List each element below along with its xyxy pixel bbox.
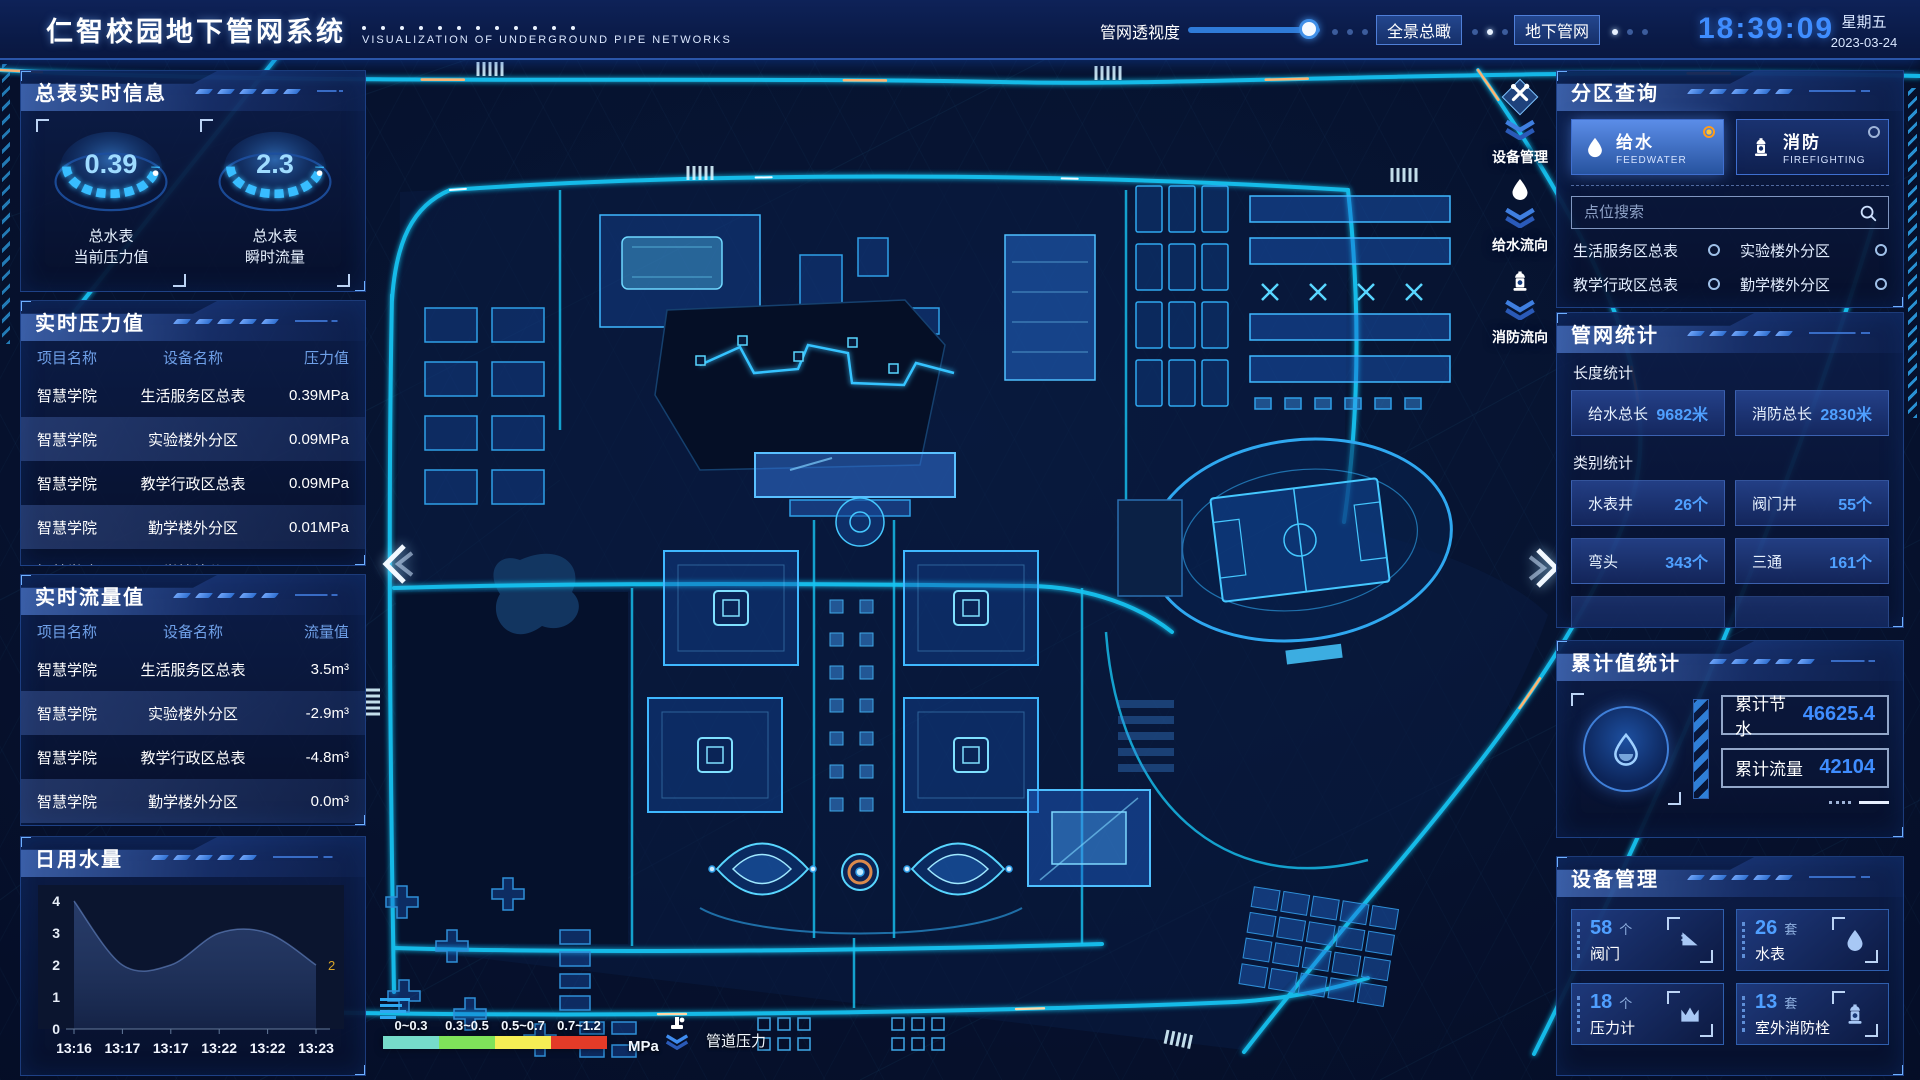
search-icon (1858, 203, 1878, 223)
panel-cumulative-stats: 累计值统计 累计节水46625.4 累计流量42104 (1556, 640, 1904, 838)
gauge-label: 总水表 瞬时流量 (200, 226, 350, 268)
cell-value: 0.01MPa (260, 519, 349, 536)
stat-box-partial (1735, 596, 1889, 628)
cumulative-saved-box: 累计节水46625.4 (1721, 695, 1889, 735)
stat-box-tees: 三通161个 (1735, 538, 1889, 584)
zone-point-label: 勤学楼外分区 (1740, 274, 1830, 295)
table-row: 智慧学院生活服务区总表3.5m³ (21, 647, 365, 691)
header-dots-decor (1332, 29, 1368, 35)
cumulative-flow-box: 累计流量42104 (1721, 748, 1889, 788)
gauge-main-flow: 2.3 总水表 瞬时流量 (200, 119, 350, 287)
clock-date: 星期五 2023-03-24 (1822, 11, 1906, 50)
gymnasium (1028, 790, 1150, 886)
equipment-card-pressure-gauges[interactable]: 18个压力计 (1571, 983, 1724, 1045)
slashes-decor (1689, 875, 1791, 880)
panel-daily-usage: 日用水量 0123413:1613:1713:1713:2213:2213:23… (20, 836, 366, 1076)
legend-color-bar (383, 1036, 607, 1049)
cell-project: 智慧学院 (37, 747, 126, 768)
point-search-box[interactable] (1571, 196, 1889, 229)
left-edge-decor (2, 64, 10, 344)
slashes-decor (175, 593, 277, 598)
zone-point-label: 生活服务区总表 (1573, 240, 1678, 261)
pressure-legend: 0~0.30.3~0.50.5~0.70.7~1.2 (383, 1018, 607, 1049)
hydrant-icon (1749, 135, 1773, 159)
slashes-decor (1689, 89, 1791, 94)
stat-box-fire-length: 消防总长2830米 (1735, 390, 1889, 436)
panel-title: 实时压力值 (35, 307, 145, 336)
panel-realtime-pressure: 实时压力值 项目名称 设备名称 压力值 智慧学院生活服务区总表0.39MPa智慧… (20, 300, 366, 566)
clock-weekday: 星期五 (1822, 11, 1906, 32)
table-row: 智慧学院教学行政区总表0.09MPa (21, 461, 365, 505)
pipe-pressure-icon (664, 1016, 690, 1050)
app-title: 仁智校园地下管网系统 (46, 10, 346, 49)
legend-unit: MPa (628, 1038, 659, 1055)
panel-header: 累计值统计 (1557, 641, 1903, 681)
zone-point-item[interactable]: 实验楼外分区 (1730, 233, 1897, 267)
x-tick-label: 13:17 (153, 1040, 189, 1056)
cell-project: 智慧学院 (37, 385, 126, 406)
title-dots-decor (362, 26, 732, 30)
underground-network-button[interactable]: 地下管网 (1514, 15, 1600, 45)
pressure-table-body: 智慧学院生活服务区总表0.39MPa智慧学院实验楼外分区0.09MPa智慧学院教… (21, 373, 365, 566)
cumulative-water-icon (1571, 693, 1681, 805)
map-button-label: 消防流向 (1482, 327, 1558, 347)
slashes-decor (197, 89, 299, 94)
panel-equipment: 设备管理 58个阀门 26套水表 18个压力计 13套室外消防栓 (1556, 856, 1904, 1076)
cell-value: -2.9m³ (260, 705, 349, 722)
panel-realtime-flow: 实时流量值 项目名称 设备名称 流量值 智慧学院生活服务区总表3.5m³智慧学院… (20, 574, 366, 826)
x-tick-label: 13:17 (104, 1040, 140, 1056)
header-bar: 仁智校园地下管网系统 VISUALIZATION OF UNDERGROUND … (0, 0, 1920, 60)
small-pitch (1118, 500, 1182, 596)
cell-value: 0.0m³ (260, 793, 349, 810)
slashes-decor (1711, 659, 1813, 664)
cell-project: 智慧学院 (37, 429, 126, 450)
panel-header: 管网统计 (1557, 313, 1903, 353)
stat-box-meter-wells: 水表井26个 (1571, 480, 1725, 526)
water-drop-icon (1584, 135, 1606, 159)
table-row: 智慧学院实验楼外分区0.09MPa (21, 417, 365, 461)
x-tick-label: 13:22 (201, 1040, 237, 1056)
panel-title: 管网统计 (1571, 319, 1659, 348)
gauge-value: 2.3 (256, 148, 294, 179)
x-tick-label: 13:23 (298, 1040, 334, 1056)
cell-device: 教学行政区总表 (126, 473, 260, 494)
map-button-fire-flow[interactable]: 消防流向 (1482, 268, 1558, 347)
zone-point-item[interactable]: 砺学楼外分区 (1563, 301, 1730, 308)
table-row: 智慧学院生活服务区总表0.39MPa (21, 373, 365, 417)
radio-unselected[interactable] (1708, 278, 1720, 290)
pipe-pressure-label: 管道压力 (706, 1030, 766, 1051)
y-tick-label: 3 (52, 925, 60, 941)
gauge-dial: 0.39 (47, 121, 175, 221)
length-stats-label: 长度统计 (1573, 362, 1887, 383)
dots-dash-decor (1721, 801, 1889, 804)
cell-project: 智慧学院 (37, 517, 126, 538)
panel-network-stats: 管网统计 长度统计 给水总长9682米 消防总长2830米 类别统计 水表井26… (1556, 312, 1904, 628)
clock-date-value: 2023-03-24 (1822, 35, 1906, 50)
slashes-decor (153, 855, 255, 860)
cell-project: 智慧学院 (37, 659, 126, 680)
slashes-decor (175, 319, 277, 324)
legend-range-label: 0.5~0.7 (495, 1018, 551, 1033)
cell-value: -4.8m³ (260, 749, 349, 766)
stat-box-partial (1571, 596, 1725, 628)
panel-title: 设备管理 (1571, 863, 1659, 892)
zone-point-item[interactable]: 生活服务区总表 (1563, 233, 1730, 267)
stat-box-feedwater-length: 给水总长9682米 (1571, 390, 1725, 436)
equipment-card-water-meters[interactable]: 26套水表 (1736, 909, 1889, 971)
highrise-block (1005, 235, 1095, 380)
table-row: 智慧学院勤学楼外分区0.0m³ (21, 779, 365, 823)
library-complex (655, 300, 954, 470)
table-row: 智慧学院砺学楼外分区0.00MPa (21, 549, 365, 566)
table-row: 智慧学院实验楼外分区-2.9m³ (21, 691, 365, 735)
panel-title: 累计值统计 (1571, 647, 1681, 676)
building (858, 238, 888, 276)
dashed-separator (1571, 185, 1889, 186)
table-row: 智慧学院砺学楼外分区-2.3m³ (21, 823, 365, 826)
gate-plazas (758, 1018, 944, 1050)
zone-point-label: 砺学楼外分区 (1573, 308, 1663, 309)
category-stats-label: 类别统计 (1573, 452, 1887, 473)
cell-project: 智慧学院 (37, 791, 126, 812)
legend-color-segment (495, 1036, 551, 1049)
table-row: 智慧学院勤学楼外分区0.01MPa (21, 505, 365, 549)
x-tick-label: 13:22 (250, 1040, 286, 1056)
zone-point-item[interactable]: 宿舍区泵房 (1730, 301, 1897, 308)
chevron-down-icon (1501, 208, 1539, 228)
cell-device: 生活服务区总表 (126, 659, 260, 680)
legend-range-label: 0.3~0.5 (439, 1018, 495, 1033)
cell-project: 智慧学院 (37, 703, 126, 724)
gauge-value: 0.39 (85, 148, 138, 179)
gauge-label: 总水表 当前压力值 (36, 226, 186, 268)
transparency-slider[interactable] (1188, 27, 1320, 33)
panel-header: 分区查询 (1557, 71, 1903, 111)
y-tick-label: 2 (52, 957, 60, 973)
firefighting-toggle[interactable]: 消防FIREFIGHTING (1736, 119, 1889, 175)
header-dots-decor (1472, 29, 1508, 35)
hydrant-icon (1507, 268, 1533, 294)
table-header: 项目名称 设备名称 压力值 (21, 341, 365, 373)
table-header: 项目名称 设备名称 流量值 (21, 615, 365, 647)
panel-title: 总表实时信息 (35, 77, 167, 106)
y-tick-label: 4 (52, 893, 60, 909)
panel-header: 总表实时信息 (21, 71, 365, 111)
panel-main-meter-info: 总表实时信息 0.39 总水表 当前压力值 (20, 70, 366, 292)
zone-point-item[interactable]: 勤学楼外分区 (1730, 267, 1897, 301)
pressure-gauge-icon (1677, 1001, 1703, 1027)
zone-point-label: 宿舍区泵房 (1740, 308, 1815, 309)
cell-project: 智慧学院 (37, 473, 126, 494)
cell-value: 0.39MPa (260, 387, 349, 404)
panel-title: 日用水量 (35, 843, 123, 872)
panel-header: 日用水量 (21, 837, 365, 877)
radio-unselected[interactable] (1875, 244, 1887, 256)
stat-box-elbows: 弯头343个 (1571, 538, 1725, 584)
water-meter-icon (1843, 927, 1867, 953)
transparency-slider-knob[interactable] (1299, 19, 1319, 39)
panel-title: 分区查询 (1571, 77, 1659, 106)
daily-usage-chart: 0123413:1613:1713:1713:2213:2213:232 (34, 881, 352, 1071)
zone-point-label: 教学行政区总表 (1573, 274, 1678, 295)
radio-unselected[interactable] (1708, 244, 1720, 256)
table-row: 智慧学院教学行政区总表-4.8m³ (21, 735, 365, 779)
chevron-down-icon (1501, 300, 1539, 320)
cell-device: 勤学楼外分区 (126, 791, 260, 812)
legend-color-segment (383, 1036, 439, 1049)
cell-device: 实验楼外分区 (126, 703, 260, 724)
transparency-slider-label: 管网透视度 (1100, 19, 1180, 43)
x-axis (66, 1029, 330, 1034)
app-subtitle: VISUALIZATION OF UNDERGROUND PIPE NETWOR… (362, 34, 732, 46)
dashboard-stage: 仁智校园地下管网系统 VISUALIZATION OF UNDERGROUND … (0, 0, 1920, 1080)
equipment-card-outdoor-hydrants[interactable]: 13套室外消防栓 (1736, 983, 1889, 1045)
cell-device: 砺学楼外分区 (126, 561, 260, 567)
radio-selected[interactable] (1703, 126, 1715, 138)
legend-color-segment (551, 1036, 607, 1049)
radio-unselected[interactable] (1875, 278, 1887, 290)
zone-point-label: 实验楼外分区 (1740, 240, 1830, 261)
cell-value: 3.5m³ (260, 661, 349, 678)
cell-value: 0.00MPa (260, 563, 349, 567)
water-drop-icon (1508, 176, 1532, 202)
cell-device: 勤学楼外分区 (126, 517, 260, 538)
cell-device: 教学行政区总表 (126, 747, 260, 768)
legend-color-segment (439, 1036, 495, 1049)
y-tick-label: 1 (52, 989, 60, 1005)
point-search-input[interactable] (1582, 203, 1858, 222)
slashes-decor (1689, 331, 1791, 336)
cell-device: 实验楼外分区 (126, 429, 260, 450)
map-button-label: 设备管理 (1482, 147, 1558, 167)
panel-title: 实时流量值 (35, 581, 145, 610)
legend-range-label: 0.7~1.2 (551, 1018, 607, 1033)
chevron-down-icon (1501, 120, 1539, 140)
legend-range-labels: 0~0.30.3~0.50.5~0.70.7~1.2 (383, 1018, 607, 1033)
map-prev-arrow[interactable] (378, 542, 418, 591)
radio-unselected[interactable] (1868, 126, 1880, 138)
flow-table-body: 智慧学院生活服务区总表3.5m³智慧学院实验楼外分区-2.9m³智慧学院教学行政… (21, 647, 365, 826)
gauge-dial: 2.3 (211, 121, 339, 221)
y-tick-label: 0 (52, 1021, 60, 1037)
equipment-card-valves[interactable]: 58个阀门 (1571, 909, 1724, 971)
zone-point-item[interactable]: 教学行政区总表 (1563, 267, 1730, 301)
map-button-label: 给水流向 (1482, 235, 1558, 255)
water-drop-icon (1609, 730, 1643, 768)
right-edge-decor (1908, 88, 1917, 418)
panel-zone-query: 分区查询 给水FEEDWATER 消防FIREFIGHTING 生活服务区总表实… (1556, 70, 1904, 308)
legend-range-label: 0~0.3 (383, 1018, 439, 1033)
cell-project: 智慧学院 (37, 561, 126, 567)
cell-value: 0.09MPa (260, 431, 349, 448)
map-button-device-manage[interactable]: 设备管理 (1482, 80, 1558, 167)
header-dots-decor (1612, 29, 1648, 35)
tools-icon (1507, 80, 1533, 106)
pond (493, 554, 578, 634)
zone-point-list: 生活服务区总表实验楼外分区教学行政区总表勤学楼外分区砺学楼外分区宿舍区泵房 (1557, 233, 1903, 308)
panel-header: 实时流量值 (21, 575, 365, 615)
x-tick-label: 13:16 (56, 1040, 92, 1056)
series-end-label: 2 (328, 958, 335, 973)
hydrant-icon (1842, 1001, 1868, 1027)
clock-time: 18:39:09 (1698, 12, 1816, 46)
gauge-main-pressure: 0.39 总水表 当前压力值 (36, 119, 186, 287)
panel-header: 设备管理 (1557, 857, 1903, 897)
cell-device: 生活服务区总表 (126, 385, 260, 406)
stat-box-valve-wells: 阀门井55个 (1735, 480, 1889, 526)
valve-icon (1677, 927, 1703, 953)
cell-value: 0.09MPa (260, 475, 349, 492)
map-button-feedwater-flow[interactable]: 给水流向 (1482, 176, 1558, 255)
feedwater-toggle[interactable]: 给水FEEDWATER (1571, 119, 1724, 175)
panorama-button[interactable]: 全景总瞰 (1376, 15, 1462, 45)
panel-header: 实时压力值 (21, 301, 365, 341)
stripe-decor (1693, 699, 1709, 799)
